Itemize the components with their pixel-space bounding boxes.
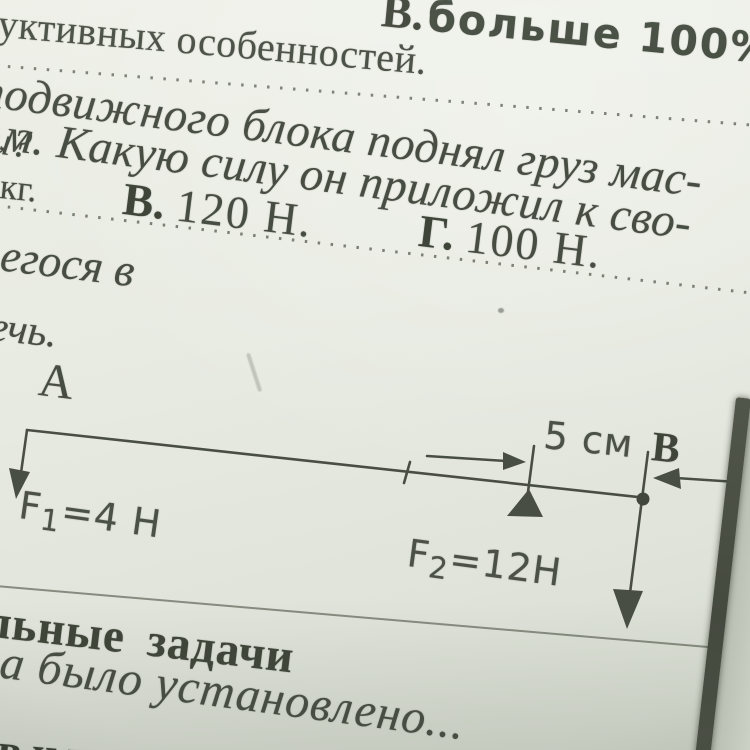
dimension-arrow-left-head: [653, 468, 681, 489]
lever-diagram: [0, 0, 750, 750]
f2-arrow-head: [613, 589, 643, 629]
fulcrum-triangle-icon: [507, 489, 543, 517]
f2-arrow-shaft: [630, 452, 648, 593]
pivot-b-dot-icon: [637, 493, 650, 506]
textbook-photo: руктивных особенностей. В. больше 100%. …: [0, 0, 750, 750]
dimension-arrow-right-shaft: [427, 456, 506, 461]
f1-arrow-head: [9, 468, 30, 499]
lever-beam-line: [27, 430, 647, 498]
dimension-arrow-right-head: [503, 452, 526, 470]
